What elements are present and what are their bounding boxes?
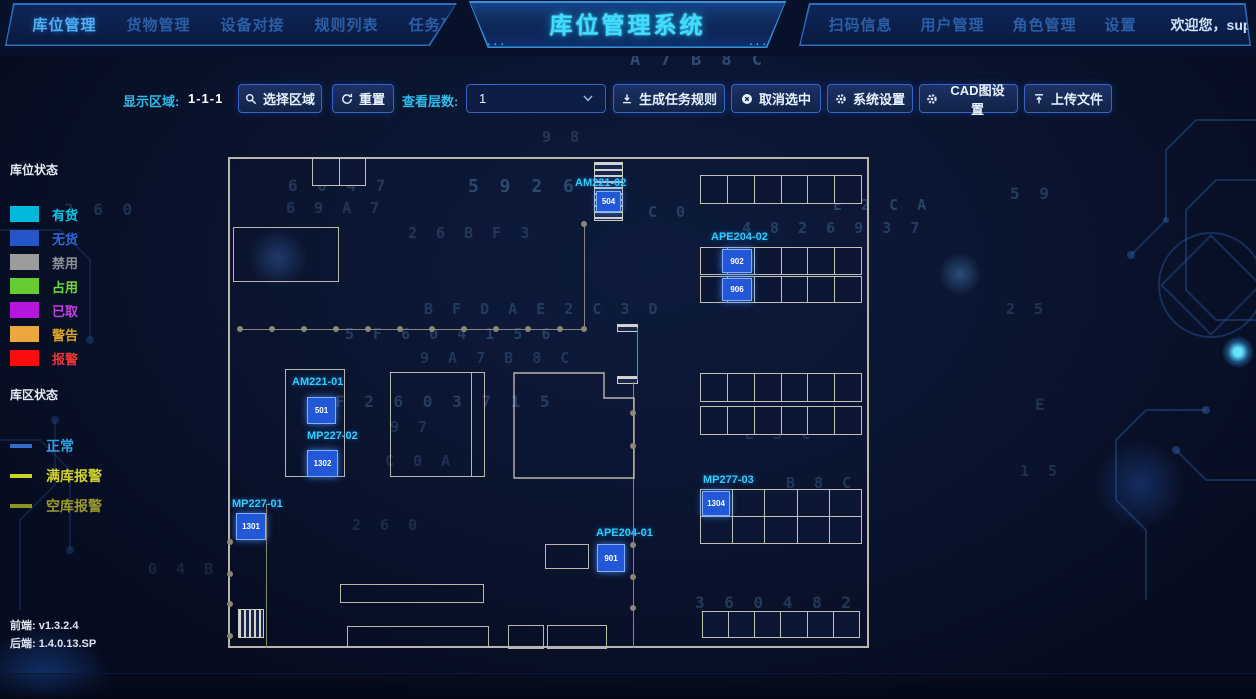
rack-cell[interactable] — [701, 407, 727, 434]
status-swatch — [10, 206, 39, 222]
column-dot — [493, 326, 499, 332]
rack-cell[interactable] — [830, 517, 861, 543]
slot-status-item: 占用 — [10, 274, 130, 298]
rack-cell[interactable] — [835, 277, 861, 302]
rack-cell[interactable] — [834, 612, 859, 637]
nav-item-user-mgmt[interactable]: 用户管理 — [921, 14, 985, 35]
status-label: 占用 — [52, 277, 78, 296]
circuit-decoration-right — [1026, 60, 1256, 600]
status-swatch — [10, 230, 39, 246]
status-swatch — [10, 254, 39, 270]
door-bracket-top — [617, 324, 638, 332]
rack-top-right — [700, 175, 862, 204]
slot-cell-highlight[interactable]: 1301 — [236, 513, 266, 540]
wall-line — [584, 222, 585, 329]
slot-cell-highlight[interactable]: 1302 — [307, 450, 338, 477]
area-status-item: 正常 — [10, 431, 130, 461]
status-line-swatch — [10, 444, 32, 448]
legend-panel: 库位状态 有货无货禁用占用已取警告报警 库区状态 正常满库报警空库报警 — [10, 161, 130, 521]
status-swatch — [10, 326, 39, 342]
rack-cell[interactable] — [313, 159, 339, 185]
rack-cell[interactable] — [782, 176, 808, 203]
rack-cell[interactable] — [808, 407, 834, 434]
nav-item-task-list[interactable]: 任务列表 — [409, 14, 473, 35]
stairs-bottom — [238, 609, 264, 638]
upload-file-label: 上传文件 — [1051, 89, 1103, 108]
version-info: 前端: v1.3.2.4 后端: 1.4.0.13.SP — [10, 617, 96, 653]
glow-dot — [1222, 336, 1254, 368]
slot-status-item: 无货 — [10, 226, 130, 250]
app-title-frame: 库位管理系统 — [455, 1, 800, 48]
rack-cell[interactable] — [808, 277, 834, 302]
column-dot — [461, 326, 467, 332]
slot-cell-highlight[interactable]: 504 — [596, 191, 621, 212]
rack-bottom-right — [702, 611, 860, 638]
area-status-item: 满库报警 — [10, 461, 130, 491]
column-dot — [269, 326, 275, 332]
cad-settings-button[interactable]: CAD图设置 — [919, 84, 1018, 113]
rack-cell[interactable] — [755, 248, 781, 274]
wall-line — [471, 372, 472, 477]
location-label: APE204-01 — [596, 527, 653, 539]
column-dot — [429, 326, 435, 332]
generate-task-rule-button[interactable]: 生成任务规则 — [613, 84, 725, 113]
column-dot — [525, 326, 531, 332]
status-swatch — [10, 278, 39, 294]
cad-settings-label: CAD图设置 — [944, 80, 1011, 118]
area-status-legend: 正常满库报警空库报警 — [10, 431, 130, 521]
rack-cell[interactable] — [728, 407, 754, 434]
nav-item-scan-info[interactable]: 扫码信息 — [829, 14, 893, 35]
slot-status-item: 有货 — [10, 202, 130, 226]
nav-item-settings[interactable]: 设置 — [1105, 14, 1137, 35]
area-status-title: 库区状态 — [10, 386, 130, 403]
glow-dot — [938, 252, 982, 296]
location-label: MP227-01 — [232, 498, 283, 510]
main-nav-frame: 库位管理 货物管理 设备对接 规则列表 任务列表 — [5, 3, 457, 46]
column-dot — [227, 539, 233, 545]
rack-cell[interactable] — [765, 490, 796, 516]
rack-cell[interactable] — [755, 277, 781, 302]
column-dot — [237, 326, 243, 332]
rack-cell[interactable] — [782, 277, 808, 302]
slot-cell-highlight[interactable]: 902 — [722, 249, 752, 273]
gear-icon — [835, 93, 847, 105]
header: 库位管理 货物管理 设备对接 规则列表 任务列表 库位管理系统 — [0, 0, 1256, 56]
status-label: 正常 — [46, 436, 74, 456]
secondary-nav: 扫码信息 用户管理 角色管理 设置 欢迎您，super — [801, 5, 1250, 45]
upload-icon — [1033, 93, 1045, 105]
column-dot — [630, 542, 636, 548]
column-dot — [227, 601, 233, 607]
select-area-label: 选择区域 — [263, 89, 315, 108]
slot-status-item: 禁用 — [10, 250, 130, 274]
cancel-circle-icon — [741, 93, 753, 105]
reset-button[interactable]: 重置 — [332, 84, 394, 113]
rack-cell[interactable] — [835, 176, 861, 203]
rack-cell[interactable] — [808, 176, 834, 203]
rack-cell[interactable] — [798, 517, 829, 543]
conveyor-bar — [340, 584, 484, 603]
system-settings-button[interactable]: 系统设置 — [827, 84, 913, 113]
area-status-item: 空库报警 — [10, 491, 130, 521]
refresh-icon — [341, 93, 353, 105]
bg-glyph: 5 9 — [1010, 184, 1054, 203]
rack-cell[interactable] — [703, 612, 728, 637]
rack-cell[interactable] — [808, 612, 833, 637]
frontend-version: 前端: v1.3.2.4 — [10, 617, 96, 635]
rack-cell[interactable] — [782, 248, 808, 274]
nav-item-rule-list[interactable]: 规则列表 — [315, 14, 379, 35]
wall-line — [240, 329, 586, 330]
status-label: 已取 — [52, 301, 78, 320]
location-label: AM221-01 — [292, 376, 343, 388]
status-label: 满库报警 — [46, 466, 102, 486]
upload-file-button[interactable]: 上传文件 — [1024, 84, 1112, 113]
rack-cell[interactable] — [733, 517, 764, 543]
column-dot — [630, 605, 636, 611]
small-room — [545, 544, 589, 569]
bg-glyph: 9 8 — [542, 128, 584, 146]
rack-cell[interactable] — [808, 374, 834, 401]
rack-cell[interactable] — [701, 176, 727, 203]
floorplan-canvas[interactable]: AM221-02 504 AM221-01 501 MP227-02 1302 … — [228, 156, 870, 650]
footer-bar — [0, 673, 1256, 699]
status-line-swatch — [10, 474, 32, 478]
rack-cell[interactable] — [755, 407, 781, 434]
column-dot — [333, 326, 339, 332]
rack-cell[interactable] — [728, 176, 754, 203]
rack-cell[interactable] — [830, 490, 861, 516]
status-label: 有货 — [52, 205, 78, 224]
rack-cell[interactable] — [701, 374, 727, 401]
display-area-label: 显示区域: — [123, 91, 179, 110]
status-label: 空库报警 — [46, 496, 102, 516]
bg-glyph: 1 5 — [1020, 462, 1062, 480]
status-label: 禁用 — [52, 253, 78, 272]
rack-cell[interactable] — [798, 490, 829, 516]
slot-status-item: 报警 — [10, 346, 130, 370]
cancel-selection-button[interactable]: 取消选中 — [731, 84, 821, 113]
small-room — [547, 625, 607, 649]
rack-cell[interactable] — [781, 612, 806, 637]
slot-status-item: 已取 — [10, 298, 130, 322]
location-label: AM221-02 — [575, 177, 626, 189]
column-dot — [630, 410, 636, 416]
rack-cell[interactable] — [729, 612, 754, 637]
rack-cell[interactable] — [340, 159, 366, 185]
download-icon — [621, 93, 633, 105]
slot-status-item: 警告 — [10, 322, 130, 346]
status-line-swatch — [10, 504, 32, 508]
rack-mid-right-row1 — [700, 373, 862, 402]
rack-cell[interactable] — [835, 374, 861, 401]
column-dot — [581, 221, 587, 227]
backend-version: 后端: 1.4.0.13.SP — [10, 635, 96, 653]
slot-cell-highlight[interactable]: 906 — [722, 278, 752, 301]
dock-cells-top-left — [312, 158, 366, 186]
column-dot — [557, 326, 563, 332]
nav-item-storage-mgmt[interactable]: 库位管理 — [33, 14, 97, 35]
secondary-nav-frame: 扫码信息 用户管理 角色管理 设置 欢迎您，super — [799, 3, 1251, 46]
slot-cell-highlight[interactable]: 1304 — [702, 491, 730, 516]
bg-glyph: 2 5 — [1006, 300, 1048, 318]
rack-cell[interactable] — [755, 176, 781, 203]
status-label: 无货 — [52, 229, 78, 248]
status-swatch — [10, 350, 39, 366]
display-area-value: 1-1-1 — [188, 91, 223, 106]
bg-glyph: 0 4 B — [148, 560, 218, 578]
status-label: 报警 — [52, 349, 78, 368]
slot-status-legend: 有货无货禁用占用已取警告报警 — [10, 202, 130, 370]
rack-cell[interactable] — [808, 248, 834, 274]
column-dot — [397, 326, 403, 332]
bg-glyph: E — [1035, 395, 1050, 414]
rack-cell[interactable] — [701, 517, 732, 543]
location-label: APE204-02 — [711, 231, 768, 243]
chevron-down-icon — [583, 95, 593, 102]
room-l-shape — [513, 372, 635, 479]
nav-item-goods-mgmt[interactable]: 货物管理 — [127, 14, 191, 35]
rack-cell[interactable] — [728, 374, 754, 401]
rack-cell[interactable] — [782, 407, 808, 434]
cancel-selection-label: 取消选中 — [759, 89, 811, 108]
nav-item-device-docking[interactable]: 设备对接 — [221, 14, 285, 35]
small-room — [508, 625, 544, 649]
reset-label: 重置 — [359, 89, 385, 108]
rack-cell[interactable] — [782, 374, 808, 401]
column-dot — [630, 443, 636, 449]
status-label: 警告 — [52, 325, 78, 344]
rack-cell[interactable] — [755, 612, 780, 637]
column-dot — [301, 326, 307, 332]
column-dot — [630, 574, 636, 580]
gear-icon — [926, 93, 938, 105]
wall-line — [637, 328, 638, 380]
slot-cell-highlight[interactable]: 901 — [597, 544, 625, 572]
slot-cell-highlight[interactable]: 501 — [307, 397, 336, 424]
welcome-user-label: 欢迎您，super — [1171, 15, 1256, 35]
glow-dot — [1095, 440, 1185, 530]
rack-cell[interactable] — [755, 374, 781, 401]
generate-task-rule-label: 生成任务规则 — [639, 89, 717, 108]
layer-count-label: 查看层数: — [402, 91, 458, 110]
status-swatch — [10, 302, 39, 318]
rack-cell[interactable] — [835, 407, 861, 434]
toolbar: 显示区域: 1-1-1 选择区域 重置 查看层数: 1 生成任务规则 取消选中 … — [0, 84, 1256, 114]
search-icon — [245, 93, 257, 105]
rack-mid-right-row2 — [700, 406, 862, 435]
rack-cell[interactable] — [765, 517, 796, 543]
layer-select-value: 1 — [479, 91, 583, 106]
select-area-button[interactable]: 选择区域 — [238, 84, 322, 113]
column-dot — [581, 326, 587, 332]
system-settings-label: 系统设置 — [853, 89, 905, 108]
location-label: MP277-03 — [703, 474, 754, 486]
page-title: 库位管理系统 — [457, 3, 799, 47]
column-dot — [365, 326, 371, 332]
rack-cell[interactable] — [733, 490, 764, 516]
column-dot — [227, 571, 233, 577]
app: 9 AA 7 B 8 C5 1 5 2 C 0 4 1 5 F 3 6 0 46… — [0, 0, 1256, 699]
rack-cell[interactable] — [835, 248, 861, 274]
conveyor-bar — [347, 626, 489, 647]
wall-line — [266, 504, 267, 648]
layer-select[interactable]: 1 — [466, 84, 606, 113]
column-dot — [227, 633, 233, 639]
room-upper-left — [233, 227, 339, 282]
location-label: MP227-02 — [307, 430, 358, 442]
main-nav: 库位管理 货物管理 设备对接 规则列表 任务列表 — [7, 5, 456, 45]
slot-status-title: 库位状态 — [10, 161, 130, 178]
nav-item-role-mgmt[interactable]: 角色管理 — [1013, 14, 1077, 35]
